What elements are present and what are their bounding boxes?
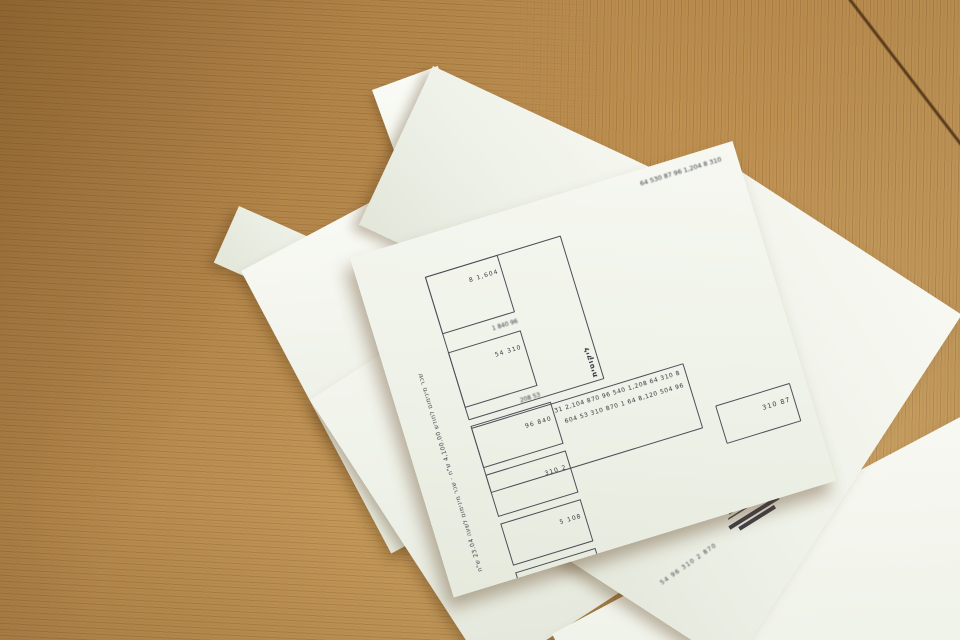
cumulative-label: ליקוטית (581, 345, 599, 378)
edge-footer-text: 870 2 310 96 54 (659, 542, 718, 587)
cell-value: 87 310 (761, 396, 791, 412)
cell-value: 108 5 (559, 513, 583, 526)
cell-value: 840 96 (524, 415, 552, 430)
form-cell-box: 87 310 (715, 383, 801, 444)
form-grid: ליקוטית 8 310 64 1,208 540 96 870 2,104 … (425, 184, 803, 518)
cell-value: 310 54 (494, 344, 522, 359)
cell-value: 1,604 8 (468, 268, 499, 284)
cell-value: 2 310 (544, 464, 568, 477)
photo-documents-on-table: 04.13 8310 68 21 8701,204 96 317 8 4086 … (0, 0, 960, 640)
